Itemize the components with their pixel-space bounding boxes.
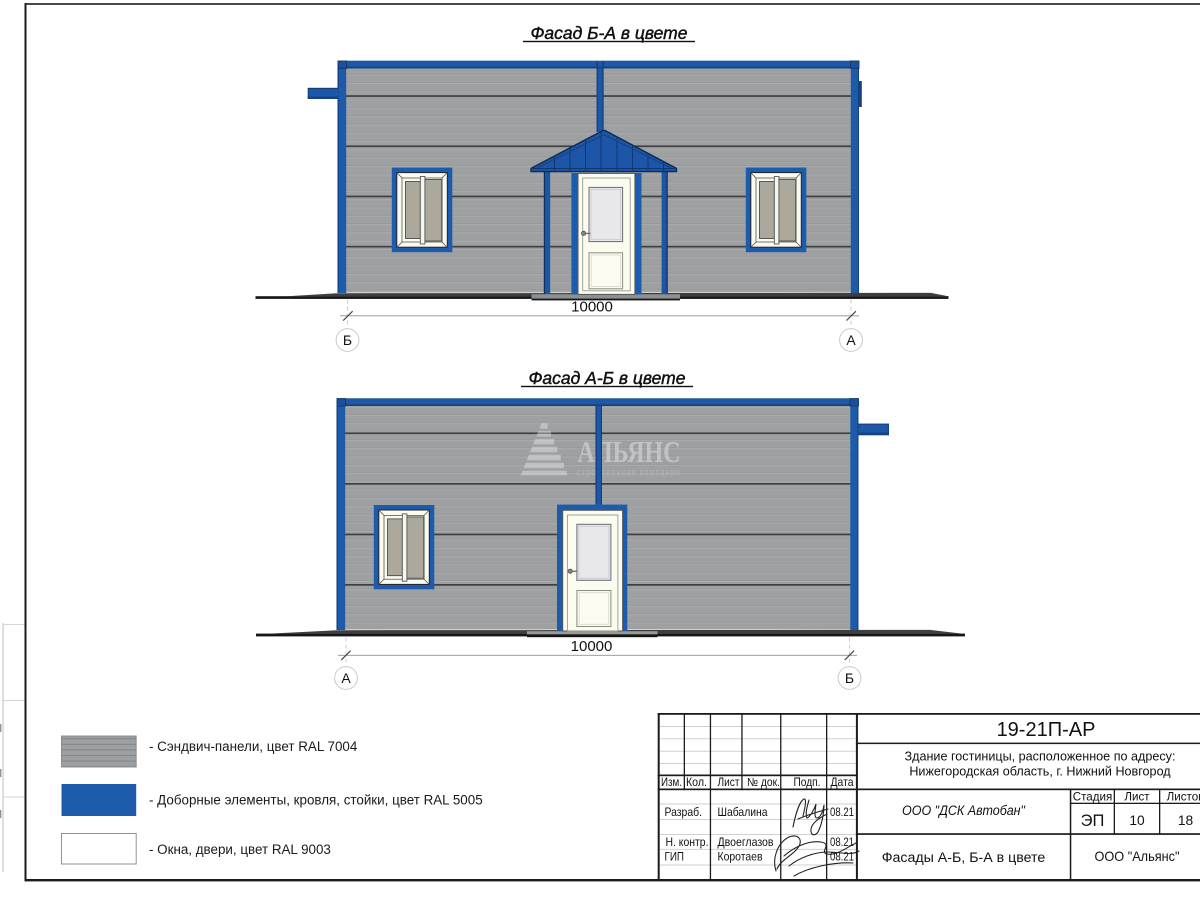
svg-text:Здание гостиницы, расположенно: Здание гостиницы, расположенное по адрес… <box>905 750 1176 764</box>
svg-text:Коротаев: Коротаев <box>718 851 763 864</box>
svg-text:Дата: Дата <box>831 776 854 789</box>
svg-text:Фасад Б-А в цвете: Фасад Б-А в цвете <box>530 23 687 43</box>
svg-text:Листов: Листов <box>1167 791 1200 804</box>
svg-text:ООО "Альянс": ООО "Альянс" <box>1095 849 1180 864</box>
svg-text:строительная компания: строительная компания <box>577 468 681 479</box>
svg-text:10: 10 <box>1129 813 1145 828</box>
svg-text:Кол.: Кол. <box>686 776 707 789</box>
svg-text:АЛЬЯНС: АЛЬЯНС <box>578 435 681 469</box>
svg-text:Изм.: Изм. <box>661 776 682 789</box>
svg-text:Стадия: Стадия <box>1073 791 1113 804</box>
svg-text:ООО "ДСК Автобан": ООО "ДСК Автобан" <box>902 803 1026 819</box>
svg-text:Фасады А-Б, Б-А в цвете: Фасады А-Б, Б-А в цвете <box>882 850 1046 866</box>
svg-text:Нижегородская область, г. Нижн: Нижегородская область, г. Нижний Новгоро… <box>909 765 1171 779</box>
svg-text:Шабалина: Шабалина <box>718 806 768 819</box>
svg-text:18: 18 <box>1178 813 1194 828</box>
svg-text:ЭП: ЭП <box>1081 812 1105 830</box>
svg-text:№ док.: № док. <box>747 776 780 789</box>
svg-text:Фасад А-Б в цвете: Фасад А-Б в цвете <box>528 368 685 388</box>
svg-text:Лист: Лист <box>718 776 741 789</box>
svg-text:Лист: Лист <box>1124 791 1150 804</box>
svg-text:Б: Б <box>343 332 352 348</box>
svg-text:08.21: 08.21 <box>830 836 854 849</box>
svg-text:ГИП: ГИП <box>665 851 685 864</box>
svg-text:Подп.: Подп. <box>794 776 821 789</box>
svg-text:10000: 10000 <box>571 638 613 655</box>
svg-text:А: А <box>846 332 856 348</box>
svg-text:Двоеглазов: Двоеглазов <box>718 836 774 849</box>
svg-text:А: А <box>341 670 351 686</box>
svg-text:10000: 10000 <box>571 299 613 316</box>
svg-text:Н. контр.: Н. контр. <box>666 836 709 849</box>
svg-text:19-21П-АР: 19-21П-АР <box>997 719 1096 741</box>
svg-text:Разраб.: Разраб. <box>665 806 703 819</box>
svg-text:- Сэндвич-панели, цвет RAL 700: - Сэндвич-панели, цвет RAL 7004 <box>149 739 358 754</box>
svg-text:08.21: 08.21 <box>830 806 854 819</box>
svg-text:- Окна, двери, цвет RAL 9003: - Окна, двери, цвет RAL 9003 <box>149 842 331 857</box>
svg-text:Б: Б <box>845 670 854 686</box>
svg-text:- Доборные элементы, кровля, с: - Доборные элементы, кровля, стойки, цве… <box>149 793 483 808</box>
